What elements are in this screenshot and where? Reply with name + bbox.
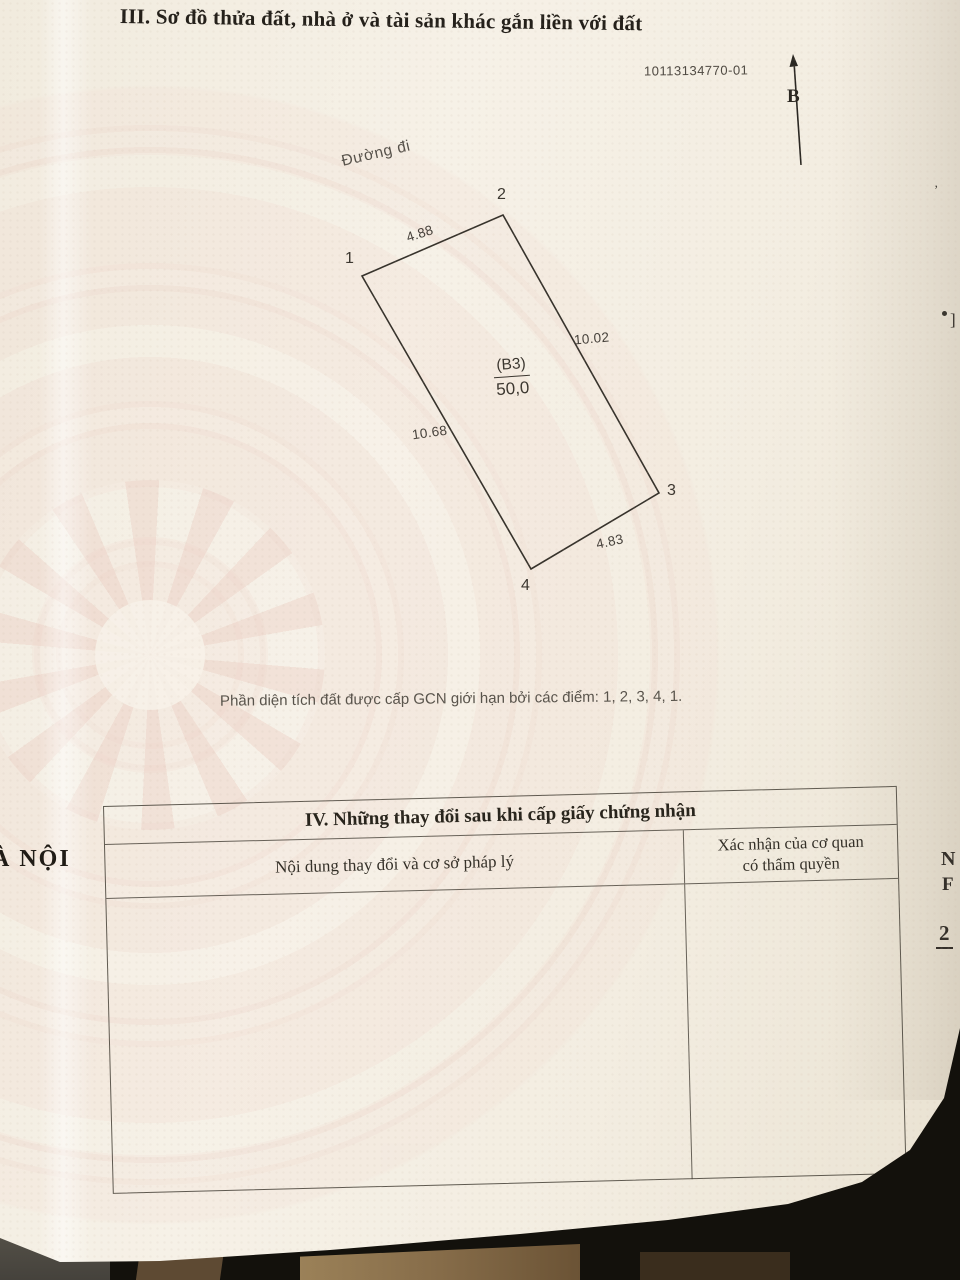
right-edge-partial-letter-n: N bbox=[941, 848, 955, 871]
right-edge-dot-mark bbox=[942, 311, 947, 316]
section3-title: III. Sơ đồ thửa đất, nhà ở và tài sản kh… bbox=[120, 4, 740, 38]
photo-of-land-certificate: { "document": { "section3": { "title": "… bbox=[0, 0, 960, 1280]
section4-body-row bbox=[106, 879, 905, 1194]
paper-crease-highlight bbox=[40, 0, 92, 1262]
column-header-confirmation-line2: có thẩm quyền bbox=[742, 853, 840, 876]
certificate-page: III. Sơ đồ thửa đất, nhà ở và tài sản kh… bbox=[0, 0, 960, 1280]
dimension-side-2-3: 10.02 bbox=[573, 329, 609, 347]
right-edge-bracket-mark: ] bbox=[950, 310, 956, 330]
background-wood-shadow bbox=[640, 1252, 790, 1280]
right-edge-tick-mark: ’ bbox=[934, 182, 938, 198]
corner-label-1: 1 bbox=[345, 250, 354, 268]
corner-label-4: 4 bbox=[521, 577, 530, 595]
parcel-outline-diagram bbox=[330, 195, 700, 605]
table-body-cell-confirmation bbox=[685, 879, 905, 1179]
corner-label-2: 2 bbox=[497, 186, 506, 204]
sheet-number: 10113134770-01 bbox=[644, 62, 749, 78]
section4-table: IV. Những thay đổi sau khi cấp giấy chứn… bbox=[103, 786, 907, 1194]
column-header-confirmation: Xác nhận của cơ quan có thẩm quyền bbox=[684, 825, 898, 883]
left-edge-partial-text: À NỘI bbox=[0, 846, 71, 873]
parcel-info: (B3) 50,0 bbox=[479, 354, 546, 401]
background-wood-floor bbox=[300, 1244, 580, 1280]
table-body-cell-content bbox=[106, 884, 692, 1194]
drum-center bbox=[95, 600, 205, 710]
column-header-content-label: Nội dung thay đổi và cơ sở pháp lý bbox=[275, 851, 514, 877]
section4-title: IV. Những thay đổi sau khi cấp giấy chứn… bbox=[305, 800, 696, 832]
north-arrow: B bbox=[784, 52, 814, 172]
right-edge-partial-number: 2 bbox=[936, 921, 953, 949]
parcel-code: (B3) bbox=[493, 355, 530, 378]
corner-label-3: 3 bbox=[667, 482, 676, 500]
north-label: B bbox=[787, 86, 800, 108]
right-edge-partial-letter-f: F bbox=[942, 874, 954, 896]
column-header-confirmation-line1: Xác nhận của cơ quan bbox=[717, 832, 864, 856]
north-arrow-icon bbox=[784, 52, 814, 172]
